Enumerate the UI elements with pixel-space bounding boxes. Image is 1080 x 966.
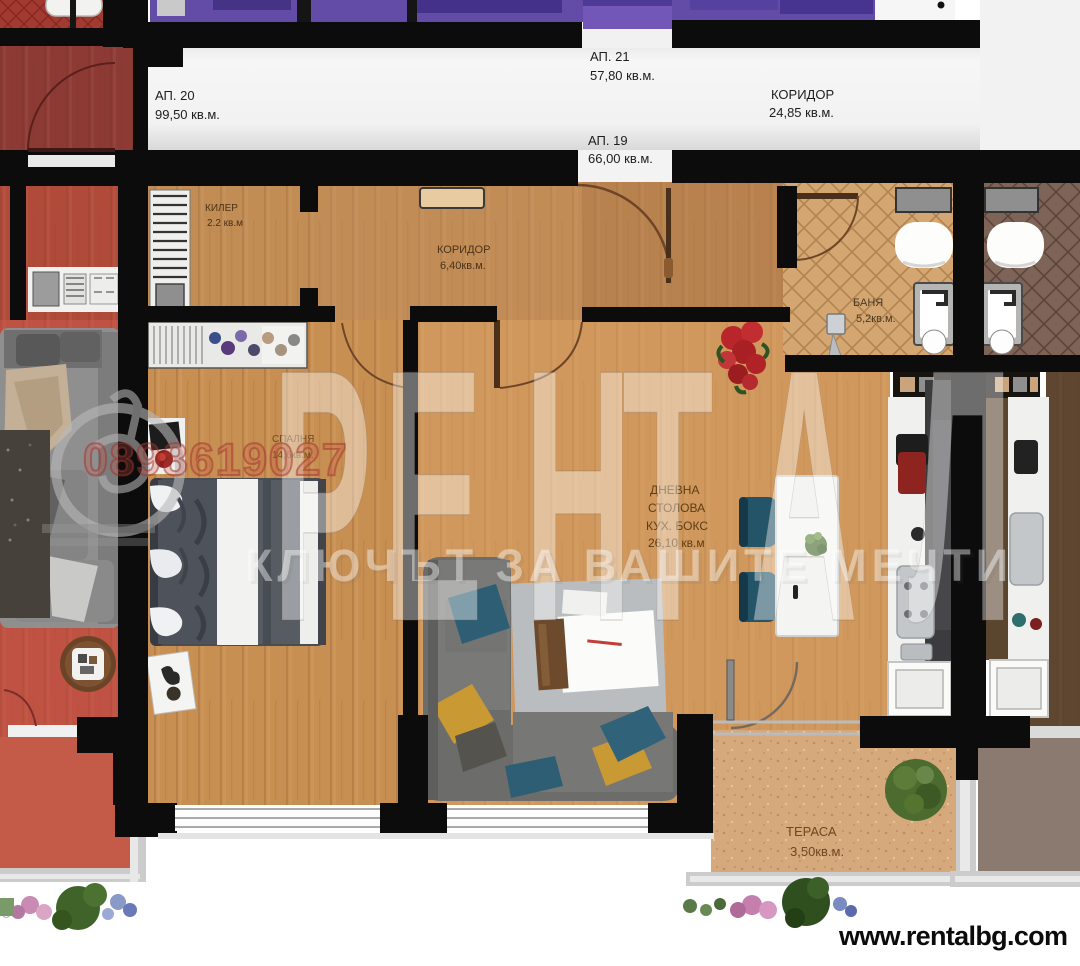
svg-text:Т: Т	[622, 295, 714, 697]
svg-text:Л: Л	[908, 295, 1013, 697]
svg-text:99,50 кв.м.: 99,50 кв.м.	[155, 107, 220, 122]
svg-text:Н: Н	[524, 295, 632, 697]
svg-text:АП. 20: АП. 20	[155, 88, 195, 103]
svg-text:6,40кв.м.: 6,40кв.м.	[440, 260, 486, 272]
svg-text:КИЛЕР: КИЛЕР	[205, 203, 238, 214]
svg-text:КЛЮЧЪТ ЗА ВАШИТЕ МЕЧТИ: КЛЮЧЪТ ЗА ВАШИТЕ МЕЧТИ	[245, 540, 1013, 591]
svg-text:АП. 19: АП. 19	[588, 133, 628, 148]
svg-text:Р: Р	[272, 295, 372, 697]
svg-text:Е: Е	[383, 295, 483, 697]
svg-text:А: А	[750, 295, 858, 697]
svg-text:АП. 21: АП. 21	[590, 49, 630, 64]
svg-text:0898619027: 0898619027	[83, 434, 348, 485]
svg-text:66,00 кв.м.: 66,00 кв.м.	[588, 151, 653, 166]
svg-text:www.rentalbg.com: www.rentalbg.com	[838, 921, 1068, 951]
svg-text:КОРИДОР: КОРИДОР	[437, 244, 490, 256]
svg-text:5,2кв.м.: 5,2кв.м.	[856, 313, 896, 325]
svg-text:57,80 кв.м.: 57,80 кв.м.	[590, 68, 655, 83]
svg-text:КОРИДОР: КОРИДОР	[771, 87, 834, 102]
svg-text:ТЕРАСА: ТЕРАСА	[786, 824, 837, 839]
svg-text:24,85 кв.м.: 24,85 кв.м.	[769, 105, 834, 120]
svg-text:2.2 кв.м: 2.2 кв.м	[207, 218, 243, 229]
svg-text:3,50кв.м.: 3,50кв.м.	[790, 844, 844, 859]
